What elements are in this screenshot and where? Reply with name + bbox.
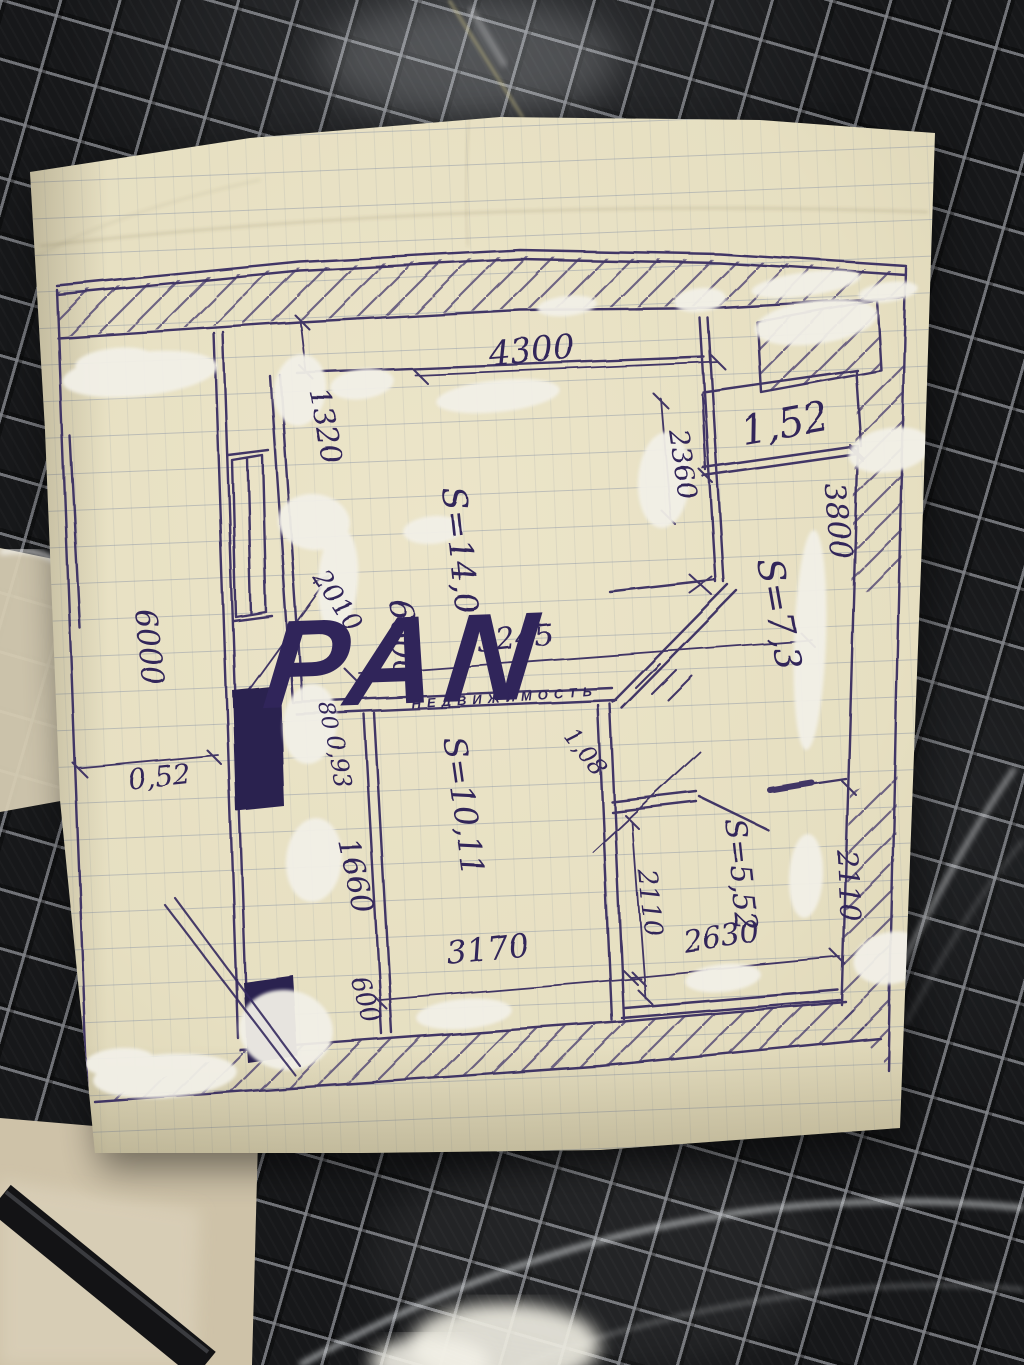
paper-content: 4300 1320 2360 1,52 3800 S=7,3 S=14,0 66… <box>20 100 960 1170</box>
dim-right-height: 3800 <box>817 482 859 561</box>
dim-br-height-outer: 2110 <box>830 848 867 922</box>
watermark-logo: PAN <box>258 585 551 736</box>
dim-top-width: 4300 <box>486 327 577 374</box>
dim-br-height-inner: 2110 <box>631 867 667 937</box>
right-wall-hatch-upper <box>851 362 905 596</box>
dim-strip-width: 0,52 <box>126 757 191 796</box>
glass-reflection-right-2 <box>905 840 1024 1025</box>
top-glare <box>320 0 620 120</box>
floor-plan-photo-scene: 4300 1320 2360 1,52 3800 S=7,3 S=14,0 66… <box>0 0 1024 1365</box>
photo-overlay: 4300 1320 2360 1,52 3800 S=7,3 S=14,0 66… <box>0 0 1024 1365</box>
glass-haze <box>370 1150 830 1365</box>
